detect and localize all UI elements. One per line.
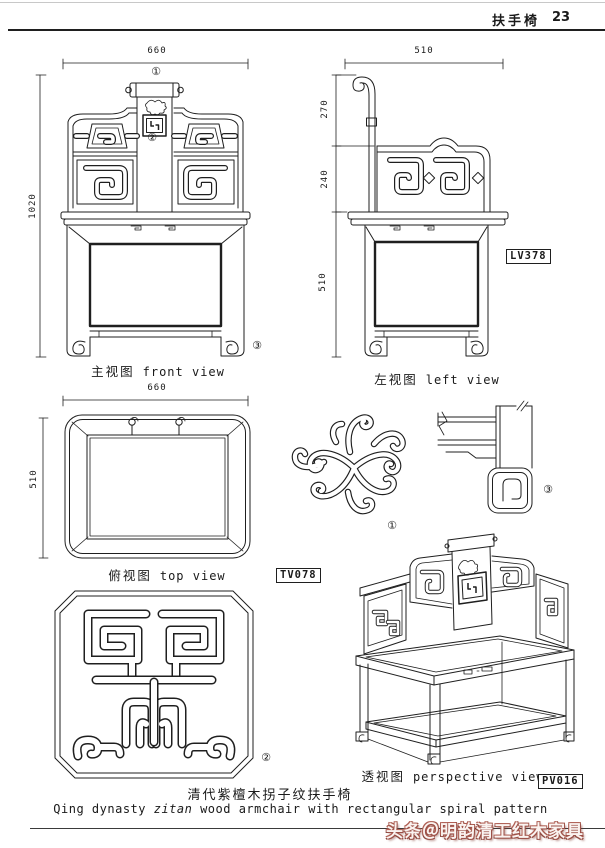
perspective-caption-zh: 透视图 [361,769,405,784]
front-marker-1: ① [148,66,164,78]
perspective-view-drawing [352,524,577,772]
front-marker-2: ② [144,132,160,144]
watermark: 头条＠明韵清工红木家具 [386,817,584,842]
top-caption-zh: 俯视图 [108,568,152,583]
top-view-caption: 俯视图top view [72,565,262,584]
medallion-detail-marker: ② [258,752,274,764]
left-width-dimension: 510 [399,46,449,56]
front-view-caption: 主视图front view [63,361,253,380]
left-caption-en: left view [426,373,500,387]
top-hairline [0,2,605,3]
top-depth-dimension: 510 [29,459,39,499]
page-header-title: 扶手椅 [492,10,540,29]
figure-title-zh: 清代紫檀木拐子纹扶手椅 [120,784,420,803]
left-lower-dimension: 510 [318,262,328,302]
front-caption-zh: 主视图 [91,364,135,379]
front-view-drawing [33,56,263,362]
perspective-caption-en: perspective view [413,770,545,784]
header-rule [8,29,605,31]
perspective-view-caption: 透视图perspective view [358,766,548,785]
top-view-drawing [40,393,255,565]
top-view-code-badge: TV078 [276,568,321,583]
joint-detail-marker: ③ [540,484,556,496]
medallion-detail-drawing [50,586,265,786]
left-view-code-badge: LV378 [506,249,551,264]
left-caption-zh: 左视图 [374,372,418,387]
figure-title-en-post: wood armchair with rectangular spiral pa… [192,802,547,816]
front-width-dimension: 660 [132,46,182,56]
left-view-caption: 左视图left view [342,369,532,388]
perspective-view-code-badge: PV016 [538,774,583,789]
top-caption-en: top view [160,569,226,583]
figure-title-en-pre: Qing dynasty [53,802,153,816]
top-width-dimension: 660 [132,383,182,393]
left-upper-dimension: 270 [320,89,330,129]
front-caption-en: front view [143,365,225,379]
figure-title-en: Qing dynasty zitan wood armchair with re… [28,802,573,816]
figure-title-en-italic: zitan [154,802,193,816]
book-page: 扶手椅 23 660 1020 [0,0,605,848]
front-marker-3: ③ [249,340,265,352]
joint-detail-drawing [430,400,595,520]
page-number: 23 [552,10,570,25]
left-mid-dimension: 240 [320,159,330,199]
left-view-drawing [330,56,575,362]
